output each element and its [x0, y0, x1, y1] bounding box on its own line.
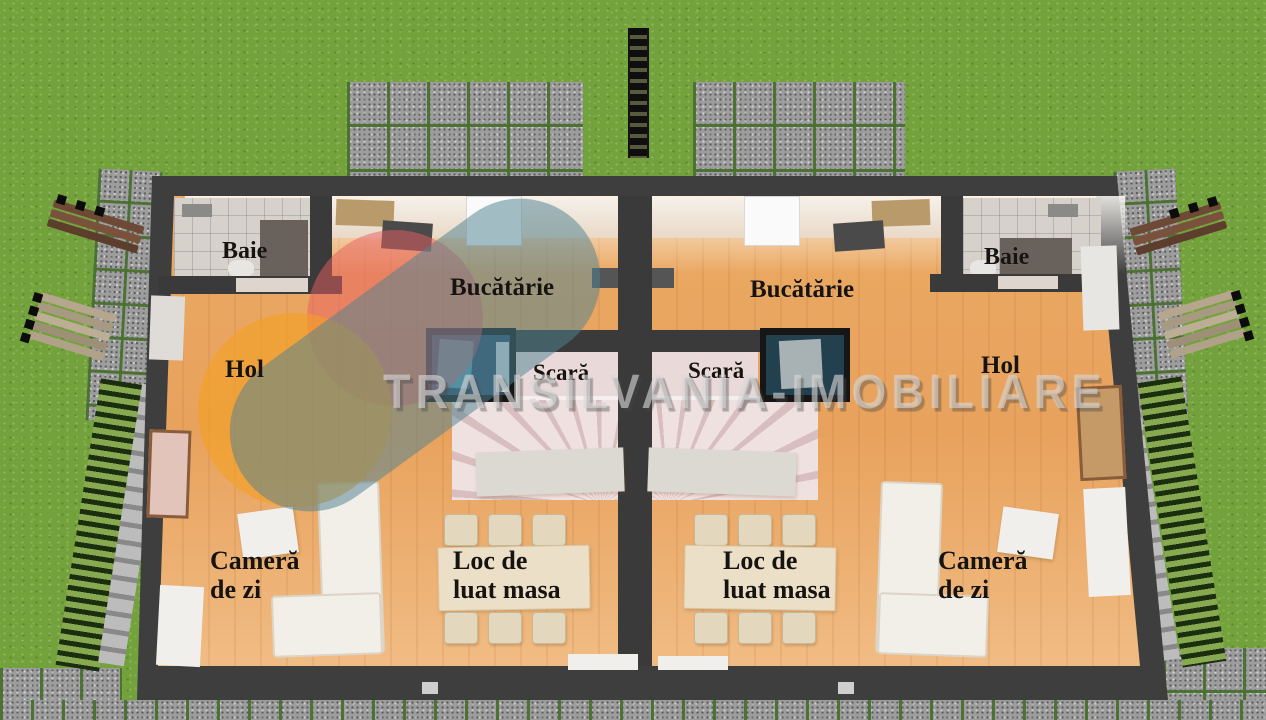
chair	[444, 612, 478, 644]
room-label-bathroom-right: Baie	[984, 244, 1029, 271]
window-notch-bottom-1	[422, 682, 438, 694]
chair	[782, 514, 816, 546]
room-label-kitchen-left: Bucătărie	[450, 274, 554, 302]
sink-right	[1048, 204, 1078, 217]
window-right-1	[1081, 245, 1120, 330]
fridge-right	[744, 196, 800, 246]
room-label-living-left: Cameră de zi	[210, 546, 300, 604]
chair	[532, 612, 566, 644]
room-label-living-right: Cameră de zi	[938, 546, 1028, 604]
chair	[694, 612, 728, 644]
paver-band-bottom	[0, 700, 1266, 720]
watermark-brand-text: TRANSILVANIA-IMOBILIARE	[383, 364, 1106, 420]
room-label-kitchen-right: Bucătărie	[750, 276, 854, 304]
chair	[738, 612, 772, 644]
bath-left-door	[236, 278, 308, 292]
chair	[444, 514, 478, 546]
chair	[738, 514, 772, 546]
chair	[532, 514, 566, 546]
fence-ladder	[628, 28, 649, 158]
room-label-dining-right: Loc de luat masa	[723, 546, 831, 604]
bath-right-door	[998, 276, 1058, 289]
floor-plan-scene: Baie Bucătărie Hol Scară Cameră de zi Lo…	[0, 0, 1266, 720]
room-label-dining-left: Loc de luat masa	[453, 546, 561, 604]
sill-bottom-right-unit	[658, 656, 728, 670]
sink-left	[182, 204, 212, 217]
chair	[694, 514, 728, 546]
window-left-1	[149, 295, 185, 360]
cooktop-right	[833, 220, 885, 251]
sideboard-left	[475, 447, 624, 496]
chair	[782, 612, 816, 644]
sill-bottom-left-unit	[568, 654, 638, 670]
room-label-hall-left: Hol	[225, 356, 264, 384]
chair	[488, 612, 522, 644]
paver-patch-top-right	[693, 82, 905, 178]
window-left-2	[146, 429, 191, 518]
window-notch-bottom-2	[838, 682, 854, 694]
room-label-bathroom-left: Baie	[222, 238, 267, 265]
paver-patch-top-left	[347, 82, 583, 178]
window-left-3	[156, 585, 204, 667]
stair-wall-right	[650, 330, 764, 352]
sideboard-right	[647, 447, 796, 496]
central-party-wall	[618, 196, 652, 666]
chair	[488, 514, 522, 546]
window-right-3	[1083, 487, 1131, 597]
